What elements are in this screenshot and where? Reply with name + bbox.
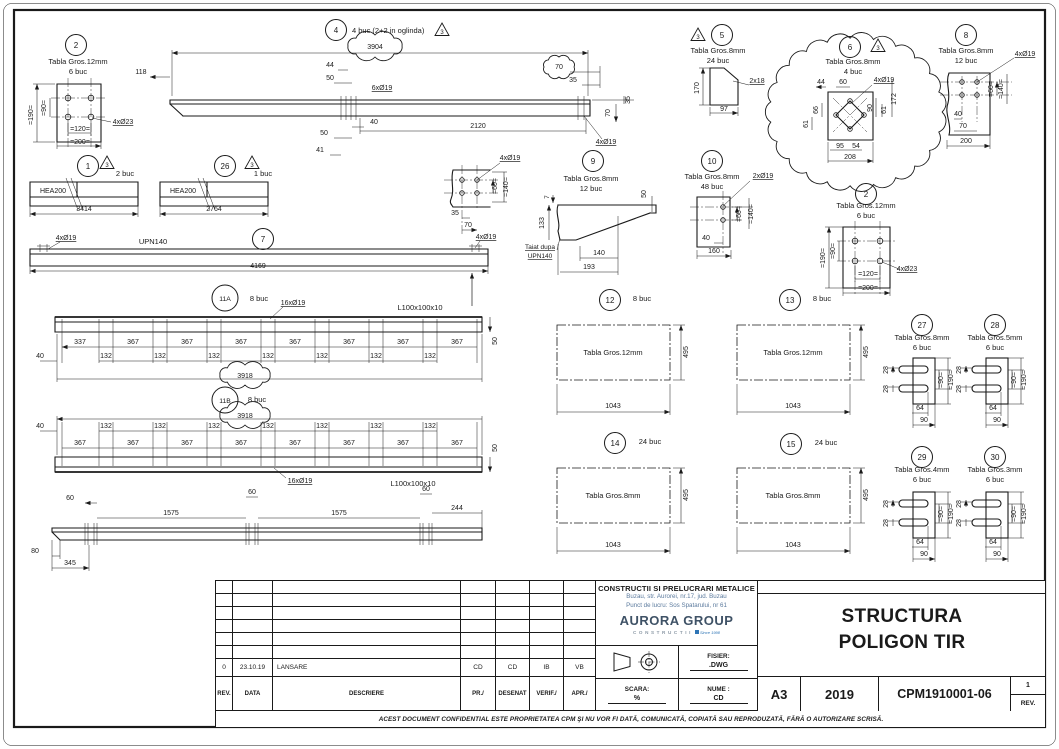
part-13-drawing [737,325,865,415]
dim-label: 54 [852,143,860,150]
part-balloon-number: 28 [991,321,1000,330]
paper-format: A3 [758,677,801,711]
dim-label: 367 [451,440,463,447]
dim-label: 193 [583,264,595,271]
dim-label: 50 [492,444,499,452]
qty-label: 1 buc [254,169,273,178]
dim-label: 132 [262,353,274,360]
dim-label: 1043 [605,403,621,410]
dim-label: 60 [422,486,430,493]
dim-label: =200= [858,285,878,292]
part-balloon-number: 2 [864,190,869,199]
col-verif: VERIF./ [530,677,564,711]
part-11a-drawing [40,307,490,382]
part-title: Tabla Gros.4mm [894,465,949,474]
dim-label: 2120 [470,123,486,130]
dim-label: =190= [948,504,955,524]
dim-label: 132 [370,423,382,430]
dim-label: 495 [863,489,870,501]
qty-label: 8 buc [250,294,269,303]
rev-description: LANSARE [273,659,461,677]
hole-callout: 2xØ19 [753,173,774,180]
rev-verif: IB [530,659,564,677]
col-apr: APR./ [564,677,596,711]
dim-label: 60 [66,495,74,502]
dim-label: 367 [343,440,355,447]
part-balloon-number: 9 [591,157,596,166]
dim-label: 28 [883,385,890,393]
first-angle-projection-icon [602,649,672,675]
part-balloon-number: 26 [221,162,230,171]
dim-label: 170 [694,82,701,94]
dim-label: 367 [343,339,355,346]
drawing-title-line1: STRUCTURA [758,604,1046,630]
drawing-number: CPM1910001-06 [879,677,1011,711]
dim-label: 2764 [206,206,222,213]
dim-label: 64 [989,539,997,546]
qty-label: 6 buc [913,343,932,352]
dim-label: 44 [326,62,334,69]
part-title: Tabla Gros.8mm [684,172,739,181]
scara-cell: SCARA: % [596,679,679,711]
dim-label: 132 [208,423,220,430]
dim-label: 132 [154,353,166,360]
dim-label: 133 [539,217,546,229]
dim-label: 132 [262,423,274,430]
dim-label: 367 [74,440,86,447]
dim-label: 64 [916,539,924,546]
company-block: CONSTRUCTII SI PRELUCRARI METALICE Buzau… [596,581,757,646]
dim-label: =90= [41,100,48,116]
projection-symbol-cell [596,646,679,679]
year: 2019 [801,677,879,711]
dim-label: 61 [803,120,810,128]
dim-label: 7 [544,195,551,199]
dim-label: 40 [954,111,962,118]
nume-value: CD [690,694,748,704]
dim-label: 160 [708,248,720,255]
qty-label: 12 buc [580,184,603,193]
drawing-title: STRUCTURA POLIGON TIR [758,594,1046,677]
company-name: CONSTRUCTII SI PRELUCRARI METALICE [596,584,757,593]
logo-dot-icon [695,630,699,634]
dim-label: 172 [891,93,898,105]
revision-table: 0 23.10.19 LANSARE CD CD IB VB REV. DATA… [216,581,596,711]
nume-cell: NUME : CD [679,679,758,711]
dim-label: 28 [956,366,963,374]
part-balloon-number: 5 [720,31,725,40]
dim-label: 1043 [605,542,621,549]
dim-label: 1575 [331,510,347,517]
hole-callout: 4xØ19 [596,139,617,146]
dim-label: 367 [181,339,193,346]
company-address-2: Punct de lucru: Sos Spatarului, nr 61 [596,602,757,611]
qty-label: 8 buc [248,395,267,404]
dim-label: =90= [938,372,945,388]
dim-label: =140= [748,204,755,224]
dim-label: 132 [316,353,328,360]
qty-label: 4 buc [844,67,863,76]
part-10-drawing [690,181,753,259]
part-balloon-number: 29 [918,453,927,462]
dim-label: 40 [36,353,44,360]
part-balloon-number: 7 [261,235,266,244]
dim-label: 35 [569,77,577,84]
dim-label: =90= [1011,506,1018,522]
hole-callout: 16xØ19 [288,478,313,485]
hole-callout: 16xØ19 [281,300,306,307]
revision-row: 0 23.10.19 LANSARE CD CD IB VB [216,659,596,677]
qty-label: 6 buc [986,475,1005,484]
dim-label: 367 [289,440,301,447]
dim-label: 90 [993,417,1001,424]
dim-label: 140 [593,250,605,257]
title-block-center: CONSTRUCTII SI PRELUCRARI METALICE Buzau… [596,581,758,711]
dim-label: 244 [451,505,463,512]
dim-label: =60= [736,206,743,222]
dim-label: =190= [28,105,35,125]
dim-label: 90 [920,417,928,424]
dim-label: 118 [135,69,146,76]
part-balloon-number: 2 [74,41,79,50]
profile-label: L100x100x10 [397,303,442,312]
part-15-drawing [737,468,865,554]
col-descriere: DESCRIERE [273,677,461,711]
dim-label: 70 [555,64,563,71]
dim-label: 200 [960,138,972,145]
logo-tagline: Since 1998 [700,630,720,635]
dim-label: 132 [316,423,328,430]
part-title: Tabla Gros.8mm [585,491,640,500]
dim-label: =190= [820,248,827,268]
dim-label: 132 [424,423,436,430]
dim-label: =140= [503,177,510,197]
dim-label: =90= [938,506,945,522]
dim-label: 28 [956,519,963,527]
revision-box: 1 REV. [1011,677,1045,711]
company-logo: AURORA GROUP CONSTRUCTIISince 1998 [596,613,757,636]
dim-label: 132 [424,353,436,360]
col-rev: REV. [216,677,233,711]
dim-label: 367 [397,440,409,447]
dim-label: 50 [492,337,499,345]
revision-number: 1 [1011,677,1045,695]
qty-label: 8 buc [813,294,832,303]
part-balloon-number: 4 [334,26,339,35]
dim-label: 95 [836,143,844,150]
dim-label: 132 [370,353,382,360]
dim-label: 35 [625,96,632,104]
hole-callout: 4xØ19 [476,234,497,241]
title-block: 0 23.10.19 LANSARE CD CD IB VB REV. DATA… [215,580,1045,727]
part-8-drawing [940,58,1014,149]
dim-label: 61 [881,106,888,114]
dim-label: 28 [956,500,963,508]
part-title: Tabla Gros.12mm [836,201,895,210]
revision-triangles: 33333 [100,23,885,169]
dim-label: =90= [830,243,837,259]
part-title: Tabla Gros.8mm [690,46,745,55]
part-title: Tabla Gros.3mm [967,465,1022,474]
fisier-value: .DWG [690,661,748,671]
part-9-drawing [549,195,656,275]
part-14-drawing [557,468,685,554]
fisier-label: FISIER: [707,653,729,660]
rev-pr: CD [461,659,496,677]
part-balloon-number: 30 [991,453,1000,462]
part-balloon-number: 15 [787,440,796,449]
dim-label: 44 [817,79,825,86]
dim-label: 1575 [163,510,179,517]
dim-label: =60= [988,81,995,97]
hole-callout: 4xØ23 [113,119,134,126]
dim-label: 90 [993,551,1001,558]
part-balloon-number: 12 [606,296,615,305]
dim-label: 40 [36,423,44,430]
rev-index: 0 [216,659,233,677]
qty-label: 2 buc [116,169,135,178]
dim-label: 35 [451,210,459,217]
dim-label: 28 [883,366,890,374]
part-title: Tabla Gros.12mm [583,348,642,357]
nume-label: NUME : [707,686,729,693]
dim-label: 64 [916,405,924,412]
dim-label: 337 [74,339,86,346]
profile-label: HEA200 [170,188,196,195]
part-title: Tabla Gros.8mm [938,46,993,55]
qty-label: 6 buc [69,67,88,76]
cad-sheet: 245681269102711A11B1213141527282930 3333… [0,0,1059,749]
hole-callout: 4xØ19 [874,77,895,84]
hole-callout: 4xØ23 [897,266,918,273]
dim-label: 345 [64,560,76,567]
qty-label: 4 buc (2+2 in oglinda) [352,26,425,35]
col-desenat: DESENAT [496,677,530,711]
dim-label: 367 [235,339,247,346]
dim-label: 70 [605,109,612,117]
hole-callout: 4xØ19 [500,155,521,162]
part-title: Tabla Gros.8mm [765,491,820,500]
dim-label: 495 [863,346,870,358]
dim-label: 367 [181,440,193,447]
dim-label: 367 [451,339,463,346]
dim-label: 367 [397,339,409,346]
title-block-right: STRUCTURA POLIGON TIR A3 2019 CPM1910001… [758,581,1046,711]
note-label: UPN140 [528,253,553,260]
hole-callout: 4xØ19 [1015,51,1036,58]
profile-label: UPN140 [139,237,167,246]
dim-label: 3918 [237,413,253,420]
dim-label: =200= [70,139,90,146]
dim-label: 41 [316,147,324,154]
part-title: Tabla Gros.12mm [763,348,822,357]
part-balloon-number: 11A [219,296,231,303]
dim-label: 40 [370,119,378,126]
dim-label: 50 [320,130,328,137]
dimension-labels: Tabla Gros.12mm6 buc=190==90=4xØ23=120==… [28,26,1035,567]
dim-label: 50 [326,75,334,82]
dim-label: 495 [683,489,690,501]
dim-label: 1043 [785,403,801,410]
rev-apr: VB [564,659,596,677]
part-4-end-plate-drawing [444,163,507,236]
qty-label: 24 buc [815,438,838,447]
qty-label: 24 buc [639,437,662,446]
qty-label: 48 buc [701,182,724,191]
dim-label: 40 [702,235,710,242]
dim-label: 3904 [367,44,383,51]
confidentiality-note: ACEST DOCUMENT CONFIDENTIAL ESTE PROPRIE… [216,711,1046,728]
hole-callout: 2x18 [749,78,764,85]
dim-label: 90 [867,104,874,112]
dim-label: 66 [813,106,820,114]
revision-clouds [220,31,946,428]
dim-label: =90= [1011,372,1018,388]
part-title: Tabla Gros.12mm [48,57,107,66]
dim-label: =190= [1021,370,1028,390]
profile-label: HEA200 [40,188,66,195]
part-balloon-number: 13 [786,296,795,305]
dim-label: 50 [641,190,648,198]
empty-strip [758,581,1046,594]
part-title: Tabla Gros.8mm [894,333,949,342]
part-6-drawing [812,80,892,163]
dim-label: =120= [70,126,90,133]
dim-label: 3414 [76,206,92,213]
dim-label: 367 [235,440,247,447]
part-title: Tabla Gros.8mm [825,57,880,66]
note-label: Taiat dupa [525,244,555,251]
company-address-1: Buzau, str. Aurorei, nr.17, jud. Buzau [596,593,757,602]
part-title: Tabla Gros.8mm [563,174,618,183]
dim-label: 132 [100,423,112,430]
dim-label: 1043 [785,542,801,549]
part-balloon-number: 6 [848,43,853,52]
drawing-title-line2: POLIGON TIR [758,630,1046,656]
col-pr: PR./ [461,677,496,711]
part-balloon-number: 11B [219,398,231,405]
qty-label: 6 buc [913,475,932,484]
dim-label: 70 [464,222,472,229]
part-12-drawing [557,325,685,415]
revision-header-row: REV. DATA DESCRIERE PR./ DESENAT VERIF./… [216,677,596,711]
part-balloon-number: 10 [708,157,717,166]
dim-label: 132 [100,353,112,360]
rev-date: 23.10.19 [233,659,273,677]
dim-label: 208 [844,154,856,161]
rev-desenat: CD [496,659,530,677]
dim-label: 97 [720,106,728,113]
dim-label: =190= [948,370,955,390]
dim-label: 80 [31,548,39,555]
dim-label: 367 [127,440,139,447]
qty-label: 24 buc [707,56,730,65]
qty-label: 12 buc [955,56,978,65]
part-balloon-number: 8 [964,31,969,40]
part-title: Tabla Gros.5mm [967,333,1022,342]
logo-wordmark: AURORA GROUP [620,613,734,628]
qty-label: 8 buc [633,294,652,303]
dim-label: 28 [956,385,963,393]
dim-label: 495 [683,346,690,358]
dim-label: =140= [998,79,1005,99]
dim-label: 60 [248,489,256,496]
qty-label: 6 buc [857,211,876,220]
hole-callout: 4xØ19 [56,235,77,242]
dim-label: 28 [883,519,890,527]
side-view-beam-drawing [52,494,482,571]
hole-callout: 6xØ19 [372,85,393,92]
fisier-cell: FISIER: .DWG [679,646,758,679]
revision-label: REV. [1011,695,1045,711]
dim-label: =190= [1021,504,1028,524]
dim-label: 64 [989,405,997,412]
col-data: DATA [233,677,273,711]
dim-label: 4169 [250,263,266,270]
dim-label: 367 [127,339,139,346]
part-balloon-number: 14 [611,439,620,448]
dim-label: 28 [883,500,890,508]
dim-label: =120= [858,271,878,278]
dim-label: =60= [492,178,499,194]
dim-label: 60 [839,79,847,86]
dim-label: 90 [920,551,928,558]
dim-label: 70 [959,123,967,130]
qty-label: 6 buc [986,343,1005,352]
part-balloon-number: 1 [86,162,91,171]
scara-label: SCARA: [625,686,650,693]
logo-subtitle: CONSTRUCTII [633,630,693,635]
part-balloon-number: 27 [918,321,927,330]
scara-value: % [608,694,666,704]
dim-label: 3918 [237,373,253,380]
dim-label: 132 [154,423,166,430]
dim-label: 367 [289,339,301,346]
dim-label: 132 [208,353,220,360]
